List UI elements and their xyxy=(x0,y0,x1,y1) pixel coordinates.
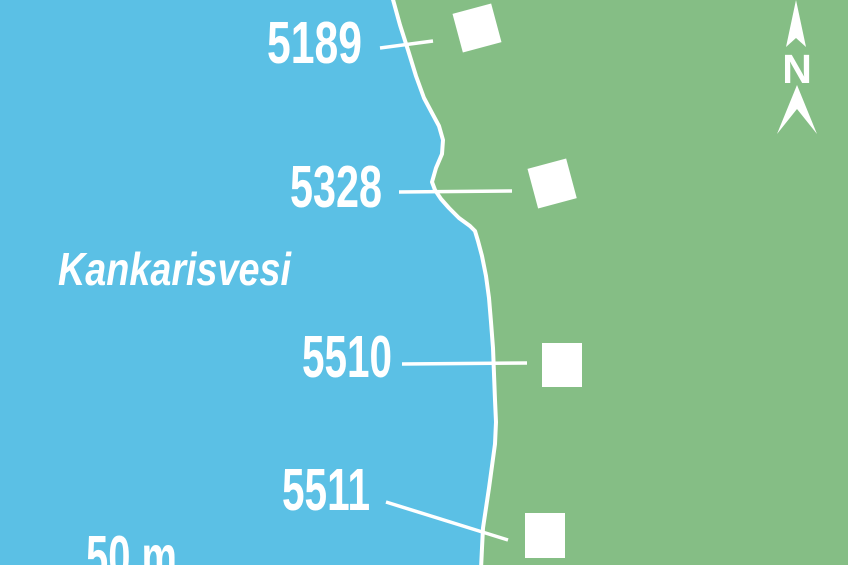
marker-label-5510: 5510 xyxy=(302,324,392,390)
marker-label-5511: 5511 xyxy=(282,457,370,523)
map-graphic: 5189 5328 5510 5511 Kankarisvesi 50 m N xyxy=(0,0,848,565)
lake-name-label: Kankarisvesi xyxy=(58,243,292,295)
marker-label-5189: 5189 xyxy=(267,10,362,76)
marker-square-5511 xyxy=(525,513,565,558)
map-canvas: 5189 5328 5510 5511 Kankarisvesi 50 m N xyxy=(0,0,848,565)
marker-square-5510 xyxy=(542,343,582,387)
marker-label-5328: 5328 xyxy=(290,154,382,220)
scale-label: 50 m xyxy=(86,524,177,565)
leader-line-5328 xyxy=(399,191,512,192)
leader-line-5510 xyxy=(402,363,527,364)
